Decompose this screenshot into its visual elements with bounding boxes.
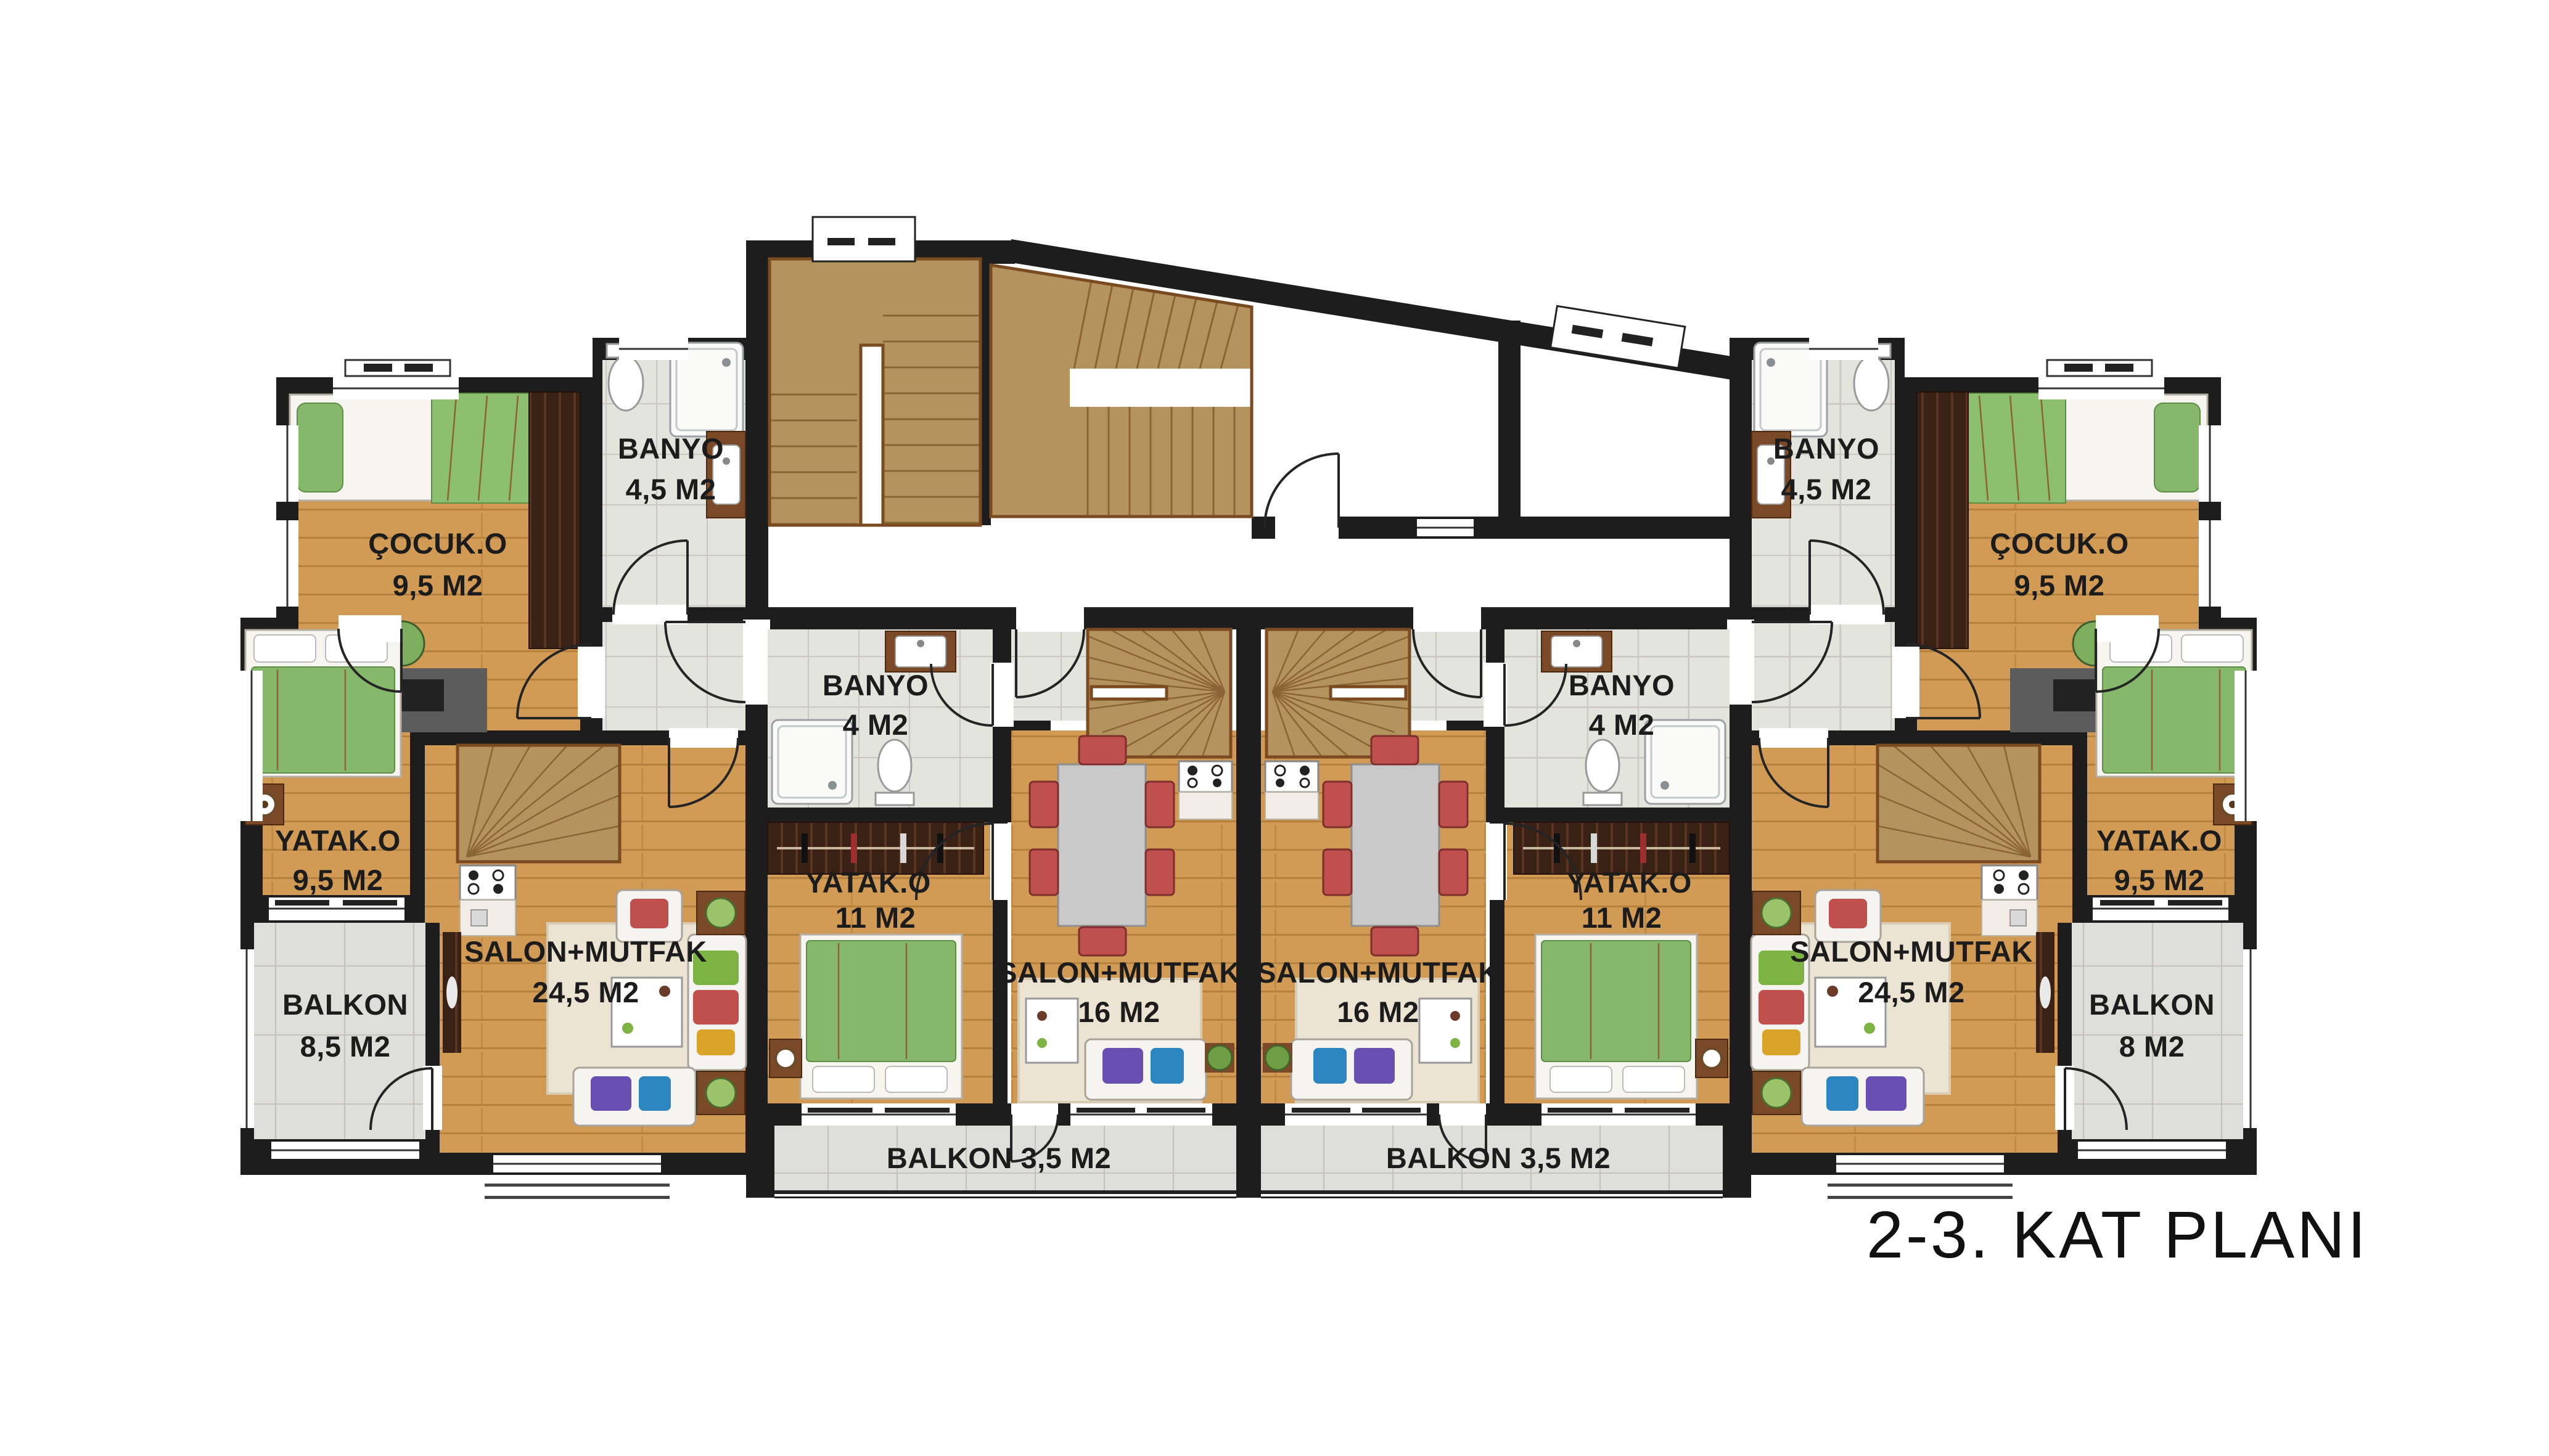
- label-banyo-right-name: BANYO: [1773, 432, 1879, 465]
- label-banyo-cl-area: 4 M2: [843, 708, 909, 741]
- apartment-right: [1727, 338, 2257, 1199]
- label-balkon-right-name: BALKON: [2089, 988, 2215, 1021]
- label-banyo-cr-area: 4 M2: [1589, 708, 1655, 741]
- label-salon-cl-name: SALON+MUTFAK: [998, 956, 1241, 989]
- label-banyo-left-name: BANYO: [618, 432, 724, 465]
- common-staircase: [770, 259, 980, 525]
- label-salon-cl-area: 16 M2: [1078, 996, 1160, 1028]
- label-cocuk-right-area: 9,5 M2: [2014, 569, 2105, 602]
- label-yatak-cr-area: 11 M2: [1582, 901, 1662, 934]
- label-cocuk-left-area: 9,5 M2: [393, 569, 483, 602]
- label-salon-left-area: 24,5 M2: [532, 976, 639, 1008]
- label-balkon-left-area: 8,5 M2: [300, 1030, 391, 1063]
- label-salon-left-name: SALON+MUTFAK: [464, 935, 707, 968]
- label-yatak-left-name: YATAK.O: [275, 824, 401, 857]
- label-balkon-cl: BALKON 3,5 M2: [887, 1142, 1111, 1174]
- shaft-window: [813, 217, 915, 261]
- label-banyo-right-area: 4,5 M2: [1781, 473, 1872, 505]
- label-banyo-left-area: 4,5 M2: [626, 473, 716, 505]
- label-balkon-cr: BALKON 3,5 M2: [1386, 1142, 1611, 1174]
- label-yatak-left-area: 9,5 M2: [293, 864, 384, 896]
- label-yatak-cl-area: 11 M2: [835, 901, 916, 934]
- label-salon-cr-name: SALON+MUTFAK: [1257, 956, 1500, 989]
- label-salon-right-area: 24,5 M2: [1858, 976, 1964, 1008]
- label-cocuk-left-name: ÇOCUK.O: [368, 527, 507, 560]
- label-salon-cr-area: 16 M2: [1337, 996, 1419, 1028]
- label-yatak-cr-name: YATAK.O: [1566, 866, 1692, 899]
- label-yatak-right-name: YATAK.O: [2096, 824, 2222, 857]
- label-balkon-left-name: BALKON: [282, 988, 408, 1021]
- label-yatak-cl-name: YATAK.O: [805, 866, 931, 899]
- label-balkon-right-area: 8 M2: [2119, 1030, 2185, 1063]
- label-cocuk-right-name: ÇOCUK.O: [1990, 527, 2128, 560]
- label-banyo-cr-name: BANYO: [1569, 669, 1675, 701]
- label-salon-right-name: SALON+MUTFAK: [1790, 935, 2033, 968]
- floor-plan-page: ÇOCUK.O 9,5 M2 BANYO 4,5 M2 YATAK.O 9,5 …: [0, 0, 2549, 1456]
- window: [1417, 519, 1474, 536]
- apartment-left: [240, 338, 770, 1199]
- floor-plan-drawing: ÇOCUK.O 9,5 M2 BANYO 4,5 M2 YATAK.O 9,5 …: [0, 0, 2549, 1456]
- label-yatak-right-area: 9,5 M2: [2114, 864, 2205, 896]
- label-banyo-cl-name: BANYO: [823, 669, 929, 701]
- angled-staircase: [991, 265, 1252, 517]
- plan-title: 2-3. KAT PLANI: [1866, 1197, 2368, 1272]
